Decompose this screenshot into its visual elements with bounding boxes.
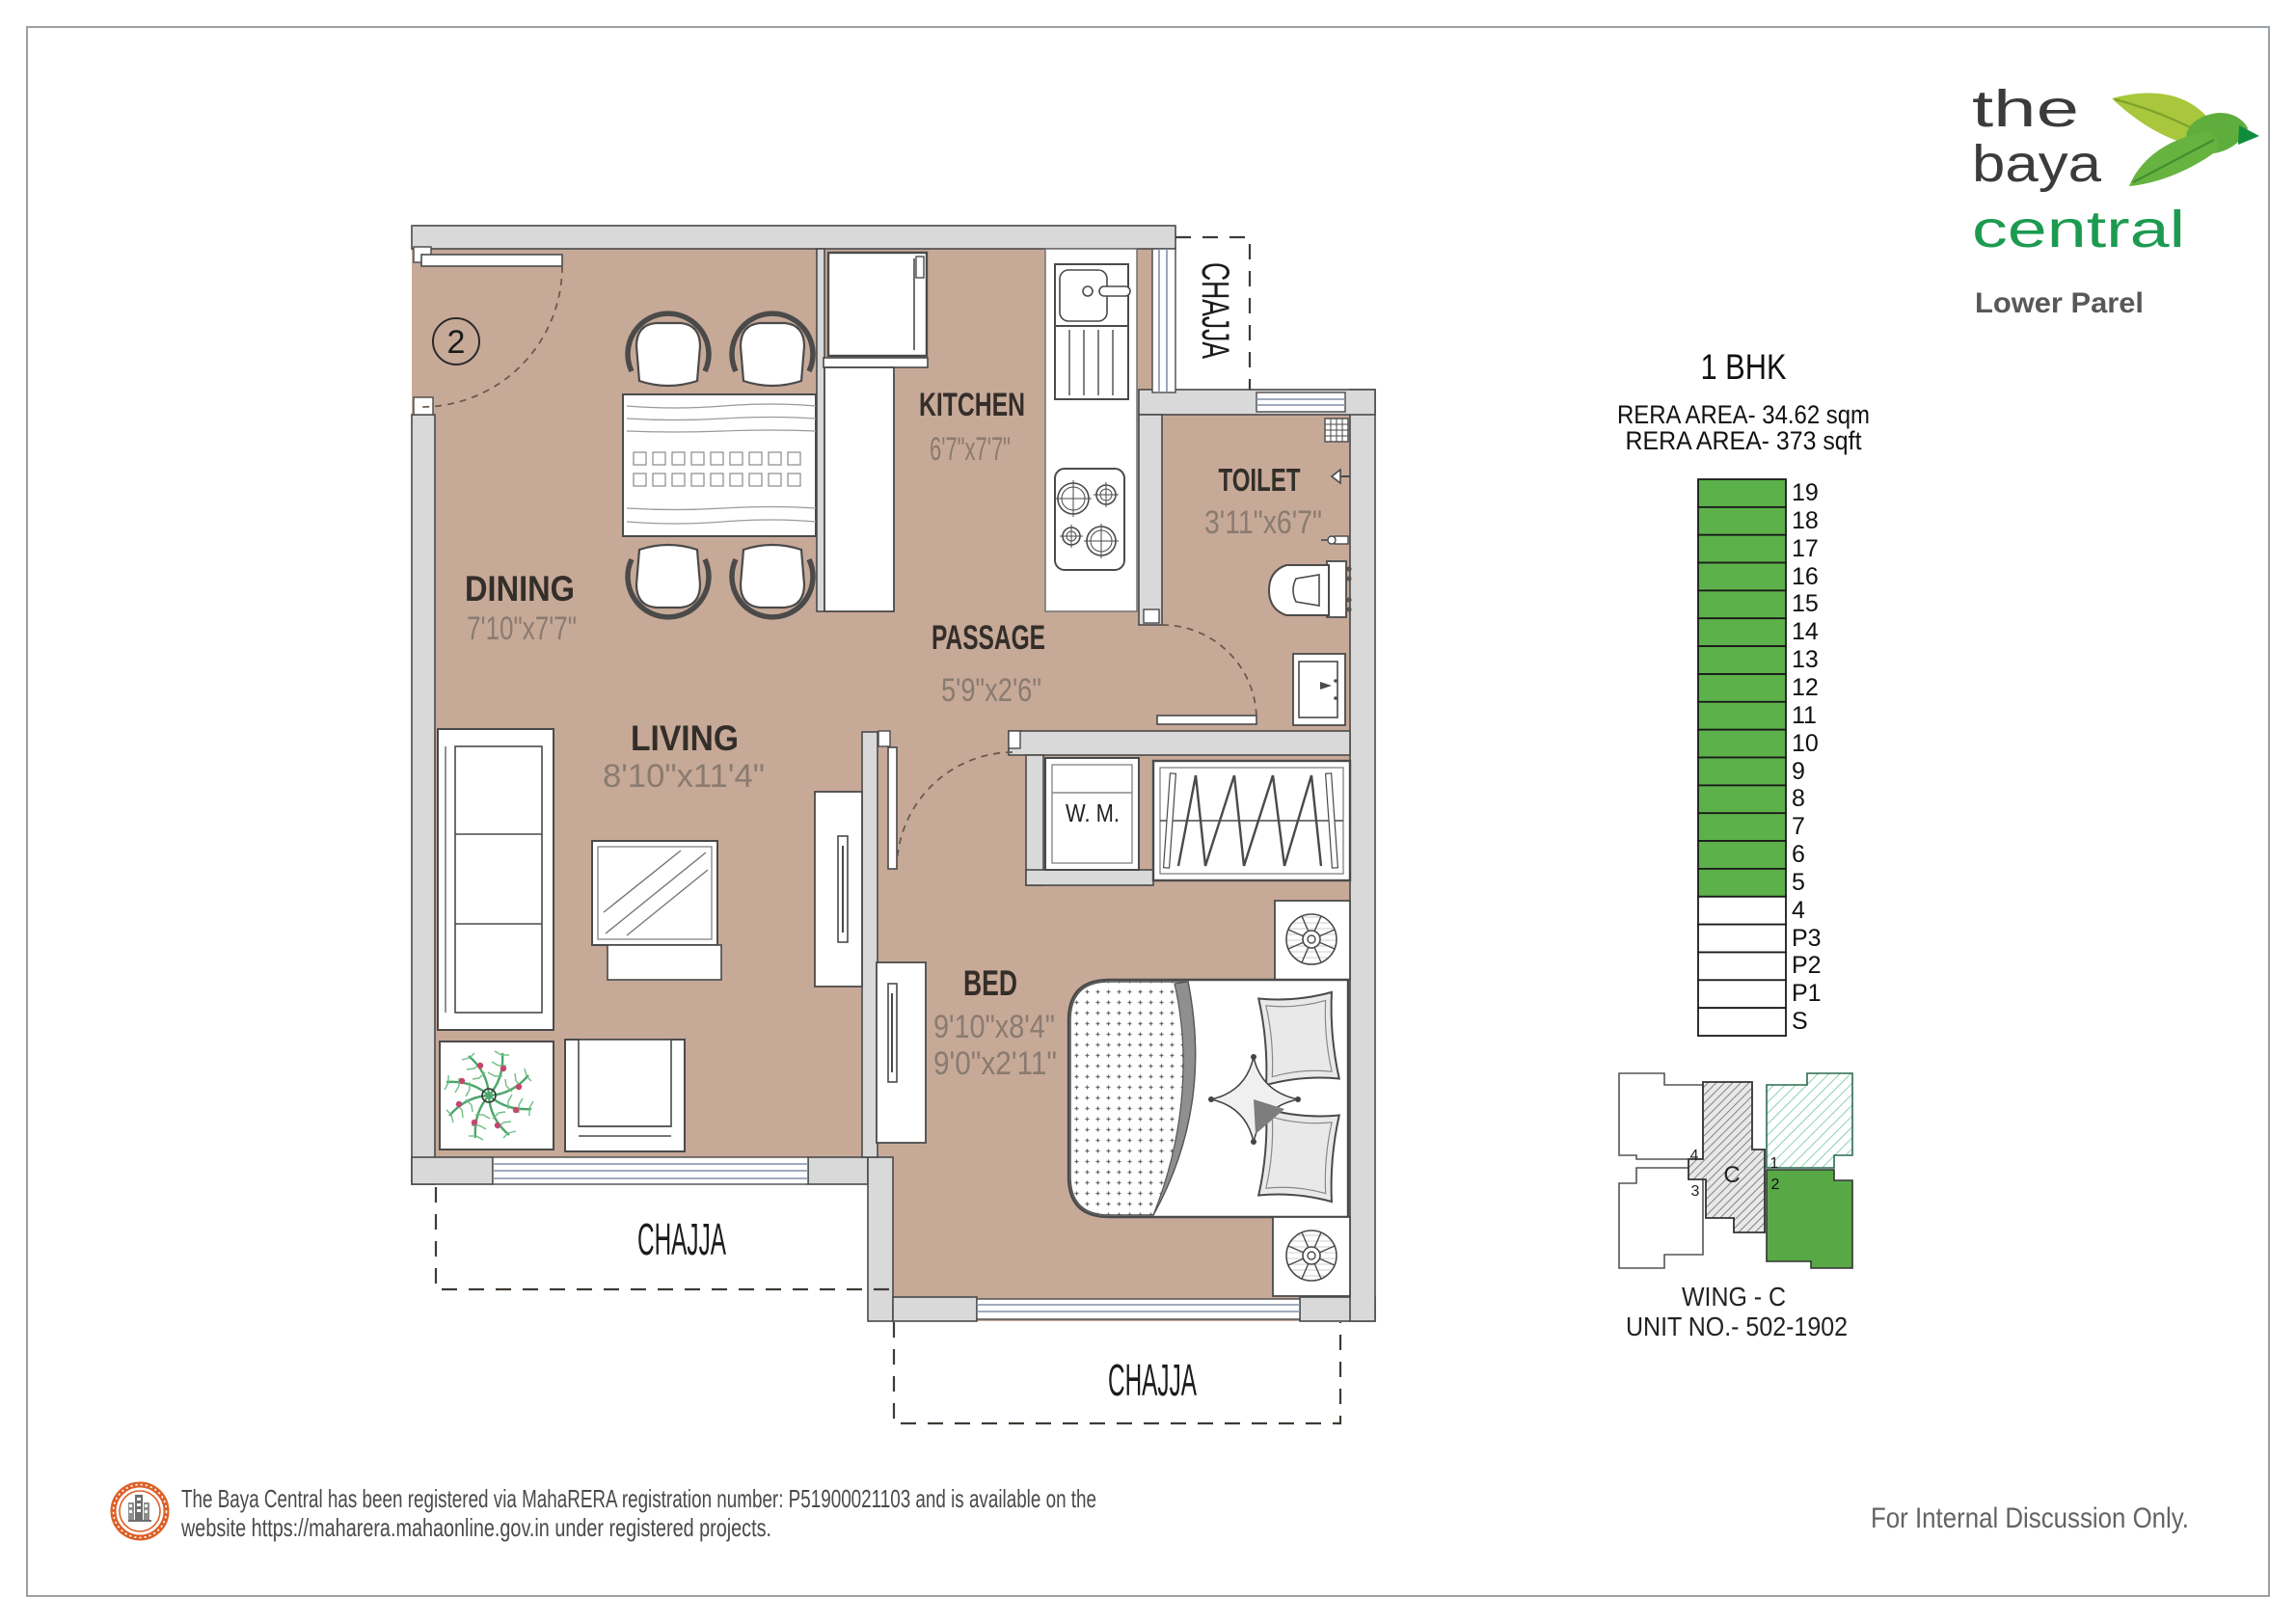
svg-text:C: C — [1723, 1162, 1740, 1188]
svg-text:RERA AREA- 373 sqft: RERA AREA- 373 sqft — [1626, 426, 1862, 455]
svg-text:8'10"x11'4": 8'10"x11'4" — [603, 758, 765, 795]
svg-text:14: 14 — [1792, 618, 1819, 645]
svg-text:4: 4 — [1690, 1148, 1699, 1164]
svg-text:For Internal Discussion Only.: For Internal Discussion Only. — [1871, 1502, 2189, 1534]
svg-text:7'10"x7'7": 7'10"x7'7" — [467, 610, 577, 647]
svg-text:11: 11 — [1792, 702, 1817, 729]
svg-text:W. M.: W. M. — [1066, 798, 1120, 827]
svg-text:Lower Parel: Lower Parel — [1975, 287, 2144, 319]
svg-text:website https://maharera.mahao: website https://maharera.mahaonline.gov.… — [180, 1513, 771, 1542]
svg-text:10: 10 — [1792, 730, 1819, 757]
svg-text:5: 5 — [1792, 869, 1805, 896]
svg-text:9: 9 — [1792, 758, 1805, 785]
svg-text:16: 16 — [1792, 563, 1819, 590]
svg-text:WING - C: WING - C — [1682, 1282, 1786, 1312]
svg-text:13: 13 — [1792, 646, 1819, 673]
svg-text:18: 18 — [1792, 507, 1819, 534]
svg-text:19: 19 — [1792, 479, 1819, 506]
svg-text:17: 17 — [1792, 535, 1819, 562]
svg-text:2: 2 — [447, 324, 466, 361]
svg-text:2: 2 — [1771, 1177, 1780, 1193]
svg-text:the: the — [1972, 80, 2079, 138]
svg-text:1: 1 — [1770, 1155, 1779, 1172]
svg-text:6'7"x7'7": 6'7"x7'7" — [930, 431, 1011, 468]
svg-text:PASSAGE: PASSAGE — [932, 619, 1045, 657]
svg-text:DINING: DINING — [465, 569, 575, 609]
svg-text:P1: P1 — [1792, 980, 1822, 1007]
svg-text:LIVING: LIVING — [631, 718, 739, 758]
svg-text:6: 6 — [1792, 841, 1805, 868]
svg-text:4: 4 — [1792, 897, 1805, 924]
svg-text:7: 7 — [1792, 813, 1805, 840]
svg-text:S: S — [1792, 1008, 1808, 1035]
svg-text:P2: P2 — [1792, 952, 1822, 979]
svg-text:CHAJJA: CHAJJA — [637, 1214, 726, 1264]
svg-text:1 BHK: 1 BHK — [1701, 347, 1787, 387]
svg-text:5'9"x2'6": 5'9"x2'6" — [941, 672, 1041, 709]
svg-text:8: 8 — [1792, 785, 1805, 812]
svg-text:RERA AREA- 34.62 sqm: RERA AREA- 34.62 sqm — [1617, 400, 1870, 429]
svg-text:TOILET: TOILET — [1219, 462, 1301, 498]
svg-text:CHAJJA: CHAJJA — [1108, 1355, 1197, 1405]
svg-text:15: 15 — [1792, 590, 1819, 617]
svg-text:The Baya Central has been regi: The Baya Central has been registered via… — [181, 1484, 1096, 1513]
svg-text:3: 3 — [1691, 1183, 1700, 1200]
svg-text:KITCHEN: KITCHEN — [919, 387, 1025, 423]
svg-text:12: 12 — [1792, 674, 1819, 701]
svg-text:P3: P3 — [1792, 925, 1822, 952]
svg-text:9'10"x8'4": 9'10"x8'4" — [933, 1009, 1055, 1045]
svg-text:BED: BED — [963, 963, 1017, 1003]
svg-text:UNIT NO.- 502-1902: UNIT NO.- 502-1902 — [1626, 1312, 1848, 1341]
svg-text:9'0"x2'11": 9'0"x2'11" — [933, 1045, 1057, 1082]
svg-text:3'11"x6'7": 3'11"x6'7" — [1204, 504, 1322, 541]
svg-text:CHAJJA: CHAJJA — [1194, 262, 1236, 359]
svg-text:central: central — [1972, 201, 2185, 258]
svg-text:baya: baya — [1972, 135, 2102, 193]
